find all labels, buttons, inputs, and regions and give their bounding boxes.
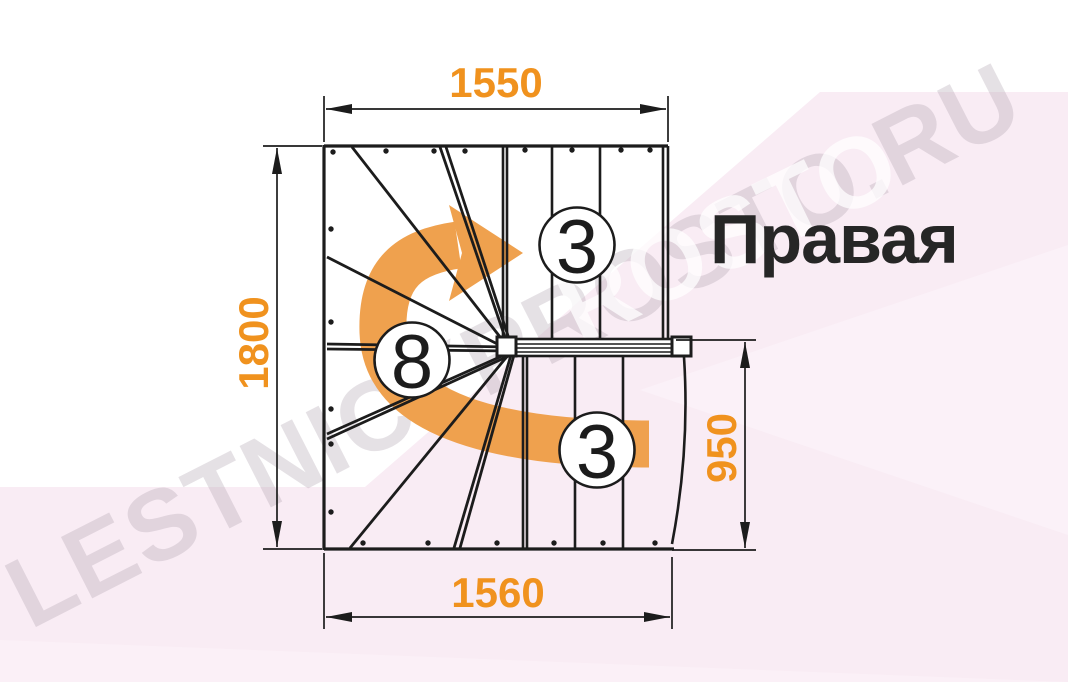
top-flight-count: 3 [556,205,598,290]
screw-dot [618,147,623,152]
screw-dot [551,540,556,545]
screw-dot [360,540,365,545]
page-title: Правая [710,200,958,278]
screw-dot [494,540,499,545]
winder-count: 8 [391,320,433,405]
landing-beam [497,337,691,356]
newel-post-left [497,337,516,356]
screw-dot [328,406,333,411]
screw-dot [328,441,333,446]
screw-dot [600,540,605,545]
screw-dot [328,319,333,324]
screw-dot [652,540,657,545]
screw-dot [328,509,333,514]
screw-dot [431,148,436,153]
screw-dot [462,148,467,153]
screw-dot [383,148,388,153]
dimension-top: 1550 [324,59,668,142]
staircase-drawing: LESTNICYPROSTO.RU ROSTO [0,0,1068,682]
screw-dot [647,147,652,152]
dimension-right-value: 950 [698,413,745,483]
dimension-top-value: 1550 [449,59,542,106]
screw-dot [569,147,574,152]
staircase-plan-page: LESTNICYPROSTO.RU ROSTO [0,0,1068,682]
screw-dot [522,147,527,152]
screw-dot [330,149,335,154]
screw-dot [425,540,430,545]
arrowhead-right [640,104,666,114]
dimension-left-value: 1800 [230,296,277,389]
screw-dot [328,226,333,231]
bottom-flight-count: 3 [576,410,618,495]
arrowhead-top [272,148,282,174]
dimension-bottom-value: 1560 [451,569,544,616]
arrowhead-left [326,104,352,114]
